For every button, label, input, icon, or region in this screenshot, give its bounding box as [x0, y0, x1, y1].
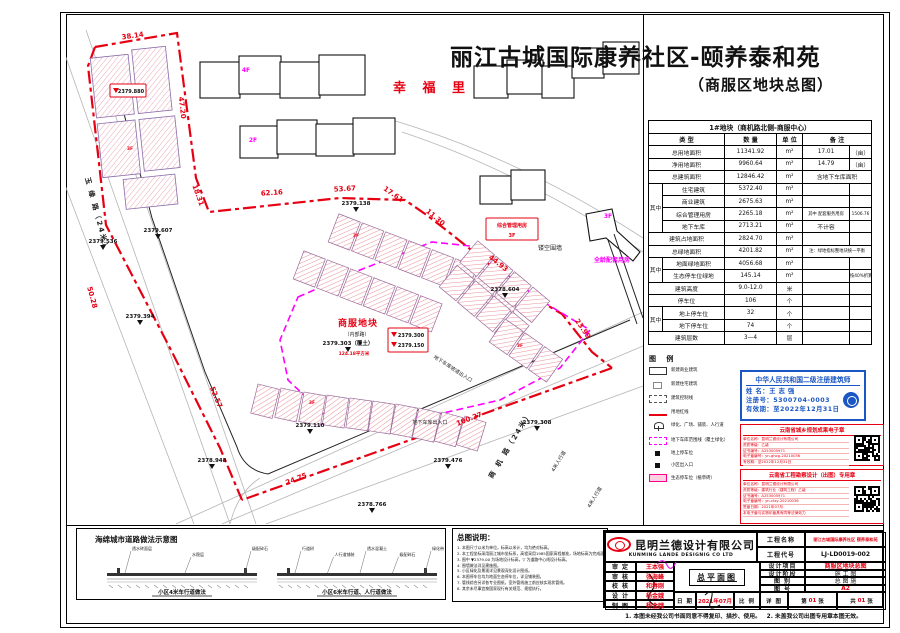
table-cell: m² — [777, 171, 803, 183]
plan-label: 幸 福 里 — [393, 80, 471, 96]
section-caption: 小区6米车行道、人行道做法 — [322, 588, 392, 596]
table-cell: 建筑层数 — [649, 332, 725, 344]
table-cell: 9960.64 — [725, 158, 777, 170]
table-cell: 106 — [725, 295, 777, 307]
table-cell: 其中 配套服务用房 — [803, 208, 850, 220]
section-layer-label: 透水混凝土 — [367, 545, 387, 551]
elevation-marker-icon — [137, 320, 143, 325]
company-logo-icon — [607, 537, 631, 552]
table-cell: 地上停车位 — [663, 307, 725, 319]
table-cell — [850, 195, 872, 207]
stamp-title: 中华人民共和国二级注册建筑师 — [746, 374, 860, 386]
note-item: 8. 其余未尽事宜按国家现行有关规范、规程执行。 — [457, 586, 607, 592]
table-cell — [803, 183, 850, 195]
table-row: 净用地面积9960.64m²14.79（亩） — [649, 158, 872, 170]
box-label: 3F — [509, 233, 516, 239]
plan-label: 2378.766 — [358, 502, 387, 508]
plan-label: 23.99 — [573, 317, 592, 340]
legend-item: 地下车库范围线（覆土绿化） — [649, 437, 741, 445]
unit-building — [322, 395, 348, 428]
table-cell: 145.14 — [725, 270, 777, 282]
plan-label: 11.30 — [424, 207, 446, 227]
legend-label: 新建商业建筑 — [671, 368, 697, 373]
plan-label: 3F — [353, 233, 359, 239]
table-row: 停车位106个 — [649, 295, 872, 307]
table-cell — [803, 319, 850, 331]
field-value: 总 图 施 — [805, 577, 886, 585]
architect-stamp: 中华人民共和国二级注册建筑师 姓 名：王 志 强 注册号：5300704-000… — [740, 370, 866, 421]
field-value: A2 — [805, 585, 886, 593]
sign-role-label: 审 定 — [605, 562, 636, 572]
legend-title: 图 例 — [649, 354, 741, 364]
unit-building — [275, 388, 303, 422]
table-row: 其中地上停车位32个 — [649, 307, 872, 319]
seal-title: 云南省工程勘察设计（出图）专用章 — [743, 471, 881, 481]
table-row: 总绿地面积4201.82m²注：绿地指标整地块统一平衡 — [649, 245, 872, 257]
legend-label: 建筑控制线 — [671, 396, 693, 401]
table-cell — [803, 270, 850, 282]
sign-role-label: 制 图 — [605, 600, 636, 610]
plan-label: 4F — [242, 67, 250, 74]
plan-label: 3F — [517, 343, 523, 349]
table-cell: 2675.63 — [725, 195, 777, 207]
legend-item: 绿化、广场、铺装、人行道 — [649, 422, 741, 430]
date-value: 2021年07月 — [696, 592, 734, 610]
sponge-title: 海绵城市道路做法示意图 — [95, 534, 178, 545]
legend-label: 生态停车位（植草砖） — [671, 476, 715, 481]
pink-rect-icon — [649, 474, 667, 482]
table-cell: 不计容 — [803, 220, 850, 232]
table-row: 建筑占地面积2824.70m² — [649, 233, 872, 245]
qr-code-icon — [854, 435, 880, 465]
table-cell: m² — [777, 270, 803, 282]
tree-icon — [649, 422, 667, 430]
plan-label: 52.57 — [208, 385, 224, 409]
table-cell: m² — [777, 257, 803, 269]
table-cell: 综合管理用房 — [663, 208, 725, 220]
table-cell: m² — [777, 195, 803, 207]
box-label: 综合管理用房 — [497, 222, 527, 229]
project-code-label: 工程代号 — [757, 547, 805, 562]
table-cell — [850, 257, 872, 269]
legend-label: 新建住宅建筑 — [671, 382, 697, 387]
sponge-city-box: 海绵城市道路做法示意图 透水砖面层水稳层级配碎石行道树人行道铺装透水混凝土级配碎… — [76, 528, 446, 600]
table-cell: 建筑占地面积 — [649, 233, 725, 245]
table-cell: 生态停车位绿地 — [663, 270, 725, 282]
plan-label: 2379.110 — [296, 423, 325, 429]
legend-label: 小区出入口 — [671, 463, 693, 468]
plan-label: 全龄配套用房 — [593, 256, 630, 264]
table-row: 生态停车位绿地145.14m²按40%折算 — [649, 270, 872, 282]
table-cell — [850, 220, 872, 232]
table-row: 其中地面绿地面积4056.68m² — [649, 257, 872, 269]
table-cell: （亩） — [850, 158, 872, 170]
legend-label: 地下车库范围线（覆土绿化） — [671, 438, 728, 443]
table-cell: 其中 — [649, 307, 663, 332]
legend-item: 生态停车位（植草砖） — [649, 474, 741, 482]
table-cell: m² — [777, 220, 803, 232]
plan-label: 3F — [127, 146, 133, 152]
table-cell: m² — [777, 146, 803, 158]
table-cell — [850, 319, 872, 331]
table-cell — [803, 282, 850, 294]
table-title: 1#地块（商机路北侧-商服中心） — [649, 121, 872, 134]
table-row: 总用地面积11341.92m²17.01（亩） — [649, 146, 872, 158]
table-cell: 含地下车库面积 — [803, 171, 872, 183]
table-row: 商业建筑2675.63m² — [649, 195, 872, 207]
plan-label: 4米人行道 — [550, 449, 568, 472]
legend-label: 用地红线 — [671, 410, 689, 415]
section-layer-label: 绿化带 — [432, 545, 444, 551]
table-cell: 2824.70 — [725, 233, 777, 245]
table-cell: m² — [777, 208, 803, 220]
plan-label: 2379.303（覆土） — [323, 339, 374, 347]
page-title: 丽江古城国际康养社区-颐养泰和苑 — [450, 38, 884, 72]
site-plan: 38.1447.2018.3150.2862.1653.6717.6111.30… — [66, 14, 643, 525]
section-layer-label: 级配碎石 — [400, 551, 416, 557]
elevation-marker-icon — [155, 234, 161, 239]
elevation-marker-icon — [445, 464, 451, 469]
legend-item: 新建商业建筑 — [649, 367, 741, 375]
table-cell: 米 — [777, 282, 803, 294]
field-value: 施 工 图 — [805, 570, 886, 578]
sign-name: 杨金娥 — [636, 600, 674, 610]
table-cell: 住宅建筑 — [663, 183, 725, 195]
plan-label: 2379.138 — [342, 201, 371, 207]
plan-label: 3F — [309, 400, 315, 406]
field-label: 图 别 — [760, 577, 805, 585]
table-cell: 11341.92 — [725, 146, 777, 158]
plan-label: 2379.476 — [434, 458, 463, 464]
table-cell — [850, 307, 872, 319]
table-cell: 其中 — [649, 257, 663, 282]
field-label: 图 号 — [760, 585, 805, 593]
table-cell — [850, 282, 872, 294]
table-cell: m² — [777, 233, 803, 245]
project-name-label: 工程名称 — [757, 532, 805, 547]
table-cell: 层 — [777, 332, 803, 344]
detail-label: 详 图 — [760, 592, 788, 610]
table-cell: （亩） — [850, 146, 872, 158]
sign-name: 和春刚 — [636, 581, 674, 591]
col-note: 备 注 — [803, 134, 872, 146]
legend-label: 地上停车位 — [671, 451, 693, 456]
table-cell — [803, 332, 850, 344]
elevation-marker-icon — [307, 429, 313, 434]
section-layer-label: 行道树 — [302, 545, 314, 551]
plan-label: 2379.394 — [126, 314, 155, 320]
table-row: 总建筑面积12846.42m²含地下车库面积 — [649, 171, 872, 183]
table-cell: 12846.42 — [725, 171, 777, 183]
plan-label: 38.14 — [121, 31, 144, 42]
company-name-en: KUNMING LANDE DESIGNIG CO LTD — [629, 553, 734, 558]
note-item: 2. 本工程坐标采用丽江城市坐标系，高程采用1985国家高程基准，场地标高为完成… — [457, 551, 607, 557]
table-cell: 商业建筑 — [663, 195, 725, 207]
general-notes: 总图说明： 1. 本图尺寸以米为单位，标高以米计，均为绝对标高。2. 本工程坐标… — [452, 528, 608, 602]
table-cell: 4056.68 — [725, 257, 777, 269]
table-cell: 总用地面积 — [649, 146, 725, 158]
plan-label: 2378.604 — [491, 287, 520, 293]
seal-line: 有效期：至2022年12月31日 — [743, 460, 849, 466]
box-label: 2379.150 — [398, 343, 425, 349]
table-cell: 建筑高度 — [649, 282, 725, 294]
rect-dash-icon — [649, 395, 667, 403]
rect-outline-icon — [649, 367, 667, 375]
box-label: 2379.300 — [398, 333, 425, 339]
area-table: 1#地块（商机路北侧-商服中心） 类 型 数 量 单 位 备 注 总用地面积11… — [648, 120, 872, 345]
building-cluster-nw — [90, 46, 184, 211]
qr-code-icon — [854, 486, 880, 516]
sign-role-label: 审 核 — [605, 572, 636, 582]
drawing-name: 总平面图 — [689, 569, 745, 586]
project-code-value: LJ-LD0019-002 — [805, 547, 886, 562]
sheet-number: 第 01 张 — [788, 592, 837, 610]
panel-divider — [643, 14, 644, 525]
table-cell: m² — [777, 158, 803, 170]
field-label: 设计阶段 — [760, 570, 805, 578]
plan-label: （内部路） — [344, 331, 369, 338]
sign-name: 张海峰 — [636, 572, 674, 582]
legend: 图 例 新建商业建筑新建住宅建筑建筑控制线用地红线绿化、广场、铺装、人行道地下车… — [649, 354, 741, 489]
table-cell: 地下车库 — [663, 220, 725, 232]
seal-line: 本电子章与实物印章具有同等法律效力 — [743, 511, 849, 517]
legend-label: 绿化、广场、铺装、人行道 — [671, 423, 724, 428]
plan-label: 53.67 — [334, 184, 357, 193]
table-cell: 17.01 — [803, 146, 850, 158]
table-cell — [803, 233, 850, 245]
col-qty: 数 量 — [725, 134, 777, 146]
sign-role-label: 校 核 — [605, 581, 636, 591]
field-label: 设计项目 — [760, 562, 805, 570]
bottom-strip-divider — [66, 525, 884, 526]
plan-label: 2F — [249, 137, 257, 144]
table-cell: 2265.18 — [725, 208, 777, 220]
plan-label: 地下车库坡道出入口 — [432, 354, 474, 384]
box-label: 2379.880 — [118, 89, 145, 95]
table-row: 地下车库2713.21m²不计容 — [649, 220, 872, 232]
table-cell: 74 — [725, 319, 777, 331]
title-block: 昆明兰德设计有限公司 KUNMING LANDE DESIGNIG CO LTD… — [603, 530, 884, 608]
scale-label: 比 例 — [734, 592, 760, 610]
plan-label: 2378.948 — [198, 458, 227, 464]
plan-label: 47.20 — [177, 96, 188, 119]
unit-building — [346, 398, 372, 431]
notes-title: 总图说明： — [457, 532, 607, 543]
legend-item: 地上停车位 — [649, 451, 741, 456]
section-caption: 小区4米车行道做法 — [158, 588, 206, 596]
section-layer-label: 级配碎石 — [252, 545, 268, 551]
table-cell: 个 — [777, 295, 803, 307]
plan-label: 3F — [604, 213, 612, 220]
sq-black-icon — [655, 451, 660, 456]
table-cell: 总绿地面积 — [649, 245, 725, 257]
table-cell: 14.79 — [803, 158, 850, 170]
table-row: 综合管理用房2265.18m²其中 配套服务用房1506.76 — [649, 208, 872, 220]
plan-label: 商 机 路（24米） — [486, 410, 533, 480]
col-type: 类 型 — [649, 134, 725, 146]
legend-item: 小区出入口 — [649, 463, 741, 468]
table-cell: 9.0-12.0 — [725, 282, 777, 294]
company-name: 昆明兰德设计有限公司 — [635, 537, 755, 553]
col-unit: 单 位 — [777, 134, 803, 146]
red-line-icon — [649, 414, 667, 416]
sign-name: 杨金娥 — [636, 591, 674, 601]
stamp-emblem-icon — [843, 392, 859, 408]
table-cell — [803, 295, 850, 307]
table-cell: 按40%折算 — [850, 270, 872, 282]
planning-eseal: 云南省城乡规划成果电子章 单位名称：昆明兰德设计有限公司资质等级：乙级证书编号：… — [740, 424, 884, 466]
plan-label: 62.16 — [261, 188, 284, 198]
table-cell: 2713.21 — [725, 220, 777, 232]
plan-label: 2379.607 — [144, 228, 173, 234]
copyright-note: 1. 本图未经我公司书面同意不得复印、描抄、使用。 2. 未盖我公司出图专用章本… — [603, 611, 884, 620]
table-cell: m² — [777, 245, 803, 257]
legend-item: 用地红线 — [649, 410, 741, 416]
design-eseal: 云南省工程勘察设计（出图）专用章 单位名称：昆明兰德设计有限公司资质等级：建筑行… — [740, 469, 884, 524]
table-cell — [850, 295, 872, 307]
table-cell — [803, 195, 850, 207]
plan-label: 地下车库出入口 — [412, 419, 447, 426]
table-cell — [850, 233, 872, 245]
unit-building — [299, 392, 326, 425]
plan-label: 124.18平方米 — [339, 350, 370, 357]
plan-label: 24.75 — [285, 471, 309, 486]
table-cell: 地面绿地面积 — [663, 257, 725, 269]
section-layer-label: 人行道铺装 — [335, 551, 355, 557]
pink-dash-icon — [649, 437, 667, 445]
stamp-name: 姓 名：王 志 强 — [746, 387, 860, 396]
plan-label: 4米人行道 — [586, 485, 604, 508]
elevation-marker-icon — [369, 508, 375, 513]
table-cell: 个 — [777, 319, 803, 331]
table-cell: 注：绿地指标整地块统一平衡 — [803, 245, 872, 257]
table-row: 建筑层数3—4层 — [649, 332, 872, 344]
table-cell: 3—4 — [725, 332, 777, 344]
plan-label: 18.31 — [190, 184, 205, 208]
table-cell — [850, 332, 872, 344]
table-cell: 净用地面积 — [649, 158, 725, 170]
date-label: 日 期 — [674, 592, 696, 610]
sheet-total: 共 01 张 — [837, 592, 886, 610]
table-cell — [850, 183, 872, 195]
table-cell: 5372.40 — [725, 183, 777, 195]
table-cell — [803, 307, 850, 319]
sign-role-label: 设 计 — [605, 591, 636, 601]
table-row: 建筑高度9.0-12.0米 — [649, 282, 872, 294]
plan-label: 50.28 — [85, 286, 98, 310]
table-row: 其中住宅建筑5372.40m² — [649, 183, 872, 195]
unit-building — [251, 384, 280, 418]
plan-label: 17.61 — [382, 185, 405, 204]
legend-item: 建筑控制线 — [649, 395, 741, 403]
table-row: 地下停车位74个 — [649, 319, 872, 331]
section-layer-label: 透水砖面层 — [132, 545, 152, 551]
table-cell: m² — [777, 183, 803, 195]
section-layer-label: 水稳层 — [192, 551, 204, 557]
table-cell: 地下停车位 — [663, 319, 725, 331]
table-cell: 总建筑面积 — [649, 171, 725, 183]
legend-item: 新建住宅建筑 — [649, 382, 741, 389]
sq-dark-icon — [655, 463, 660, 468]
table-cell: 其中 — [649, 183, 663, 233]
table-cell: 个 — [777, 307, 803, 319]
page-subtitle: （商服区地块总图） — [648, 74, 874, 95]
rect-small-icon — [653, 382, 662, 389]
drawing-name-cell: 总平面图 — [674, 562, 760, 592]
elevation-marker-icon — [534, 426, 540, 431]
plan-label: 镂空围墙 — [538, 244, 562, 252]
drawing-sheet: 38.1447.2018.3150.2862.1653.6717.6111.30… — [0, 0, 900, 633]
field-value: 商服区地块总图 — [805, 562, 886, 570]
elevation-marker-icon — [353, 207, 359, 212]
table-cell: 1506.76 — [850, 208, 872, 220]
table-cell: 4201.82 — [725, 245, 777, 257]
table-cell: 停车位 — [649, 295, 725, 307]
plan-label: 商服地块 — [338, 317, 378, 329]
table-cell — [803, 257, 850, 269]
stamp-valid: 有效期：至2022年12月31日 — [746, 405, 860, 414]
table-cell: 32 — [725, 307, 777, 319]
sign-name: 王本强 — [636, 562, 674, 572]
company-cell: 昆明兰德设计有限公司 KUNMING LANDE DESIGNIG CO LTD — [605, 532, 757, 562]
project-name-value: 丽江古城国际康养社区 颐养泰和苑 — [805, 532, 886, 547]
